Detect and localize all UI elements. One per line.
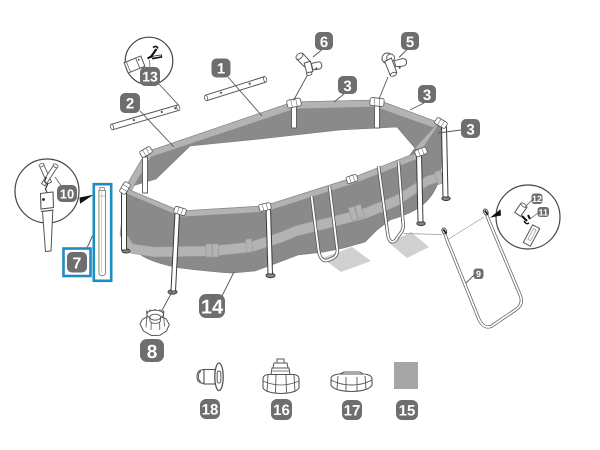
svg-text:15: 15 <box>399 403 416 420</box>
svg-text:17: 17 <box>344 403 361 420</box>
svg-text:8: 8 <box>147 342 158 363</box>
svg-text:5: 5 <box>406 34 414 51</box>
svg-text:11: 11 <box>538 207 548 217</box>
svg-text:14: 14 <box>201 297 224 319</box>
svg-text:12: 12 <box>532 194 542 204</box>
svg-text:10: 10 <box>60 187 74 202</box>
svg-text:2: 2 <box>126 96 134 113</box>
svg-text:16: 16 <box>273 402 290 419</box>
svg-text:6: 6 <box>320 34 328 51</box>
svg-text:9: 9 <box>476 269 481 279</box>
svg-text:3: 3 <box>466 121 474 138</box>
svg-text:18: 18 <box>202 402 219 419</box>
svg-text:1: 1 <box>217 61 225 78</box>
svg-text:3: 3 <box>423 87 431 104</box>
svg-text:13: 13 <box>142 69 158 85</box>
svg-text:3: 3 <box>343 78 351 95</box>
svg-text:7: 7 <box>73 256 82 273</box>
